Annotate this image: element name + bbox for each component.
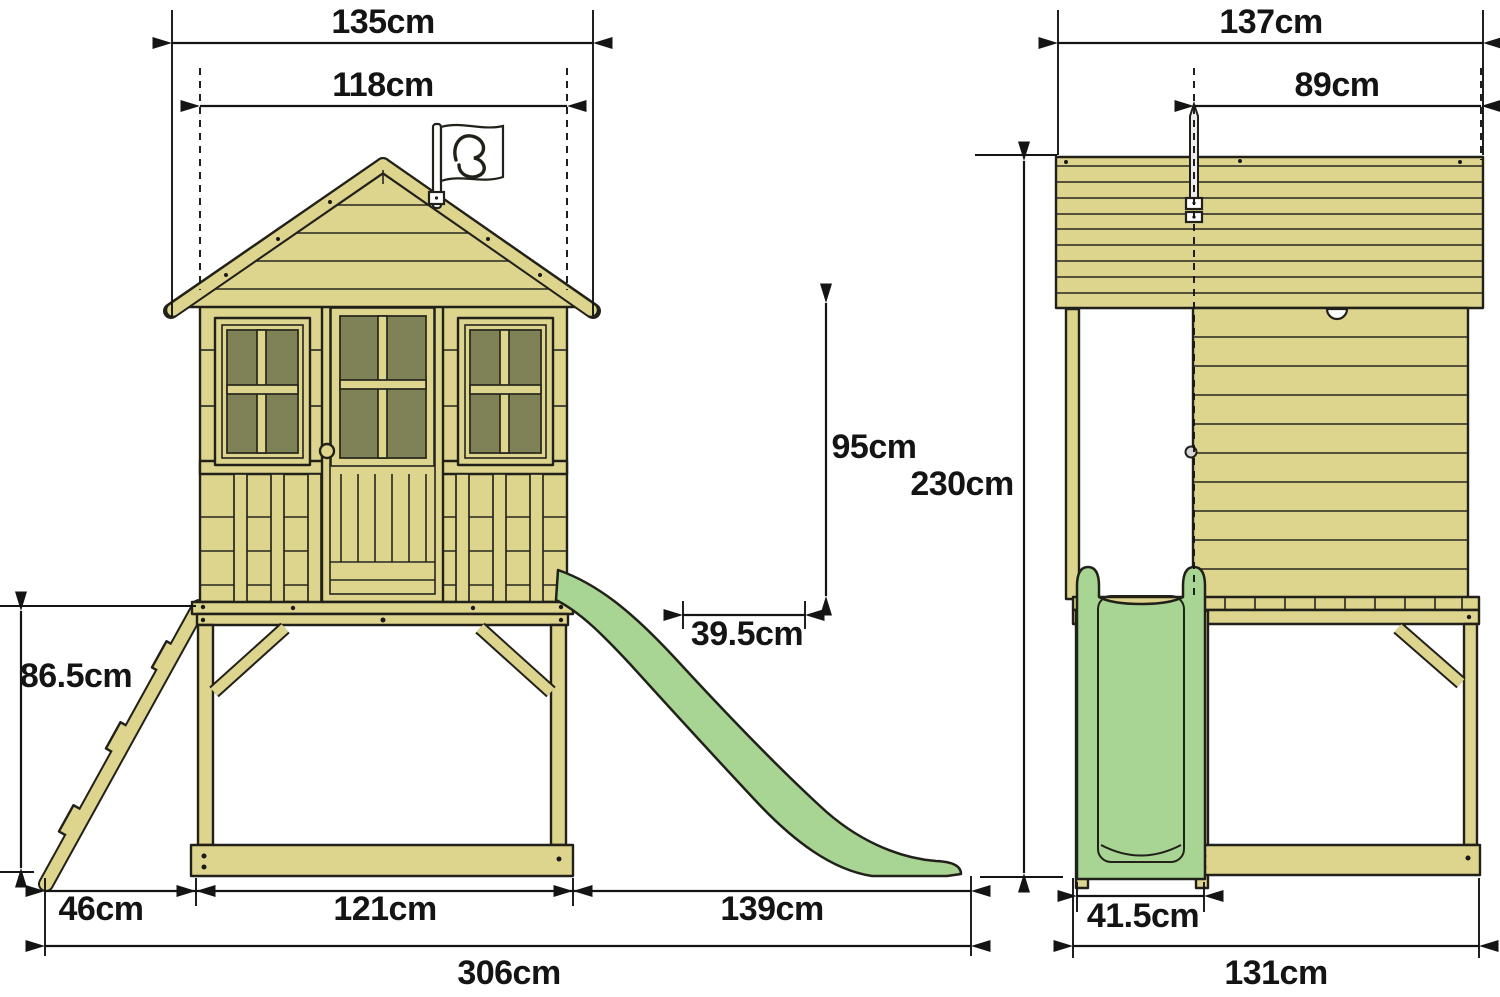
- dim-label: 306cm: [457, 954, 560, 992]
- dim-label: 135cm: [331, 3, 434, 41]
- dim-slide-footprint: 139cm: [573, 876, 971, 956]
- front-legs: [198, 625, 566, 845]
- side-wall: [1186, 308, 1469, 602]
- side-roof: [1056, 157, 1483, 308]
- dim-total-footprint: 306cm: [45, 946, 971, 992]
- playhouse-dimension-drawing: 135cm 118cm 137cm 89cm 95cm 39.5cm: [0, 0, 1500, 997]
- side-view: [1056, 104, 1483, 888]
- front-door: [316, 287, 449, 602]
- dim-side-total-depth: 137cm: [1058, 3, 1483, 155]
- dim-side-door-width: 39.5cm: [683, 601, 805, 653]
- dim-total-height: 230cm: [910, 155, 1063, 877]
- dim-label: 121cm: [333, 890, 436, 928]
- dim-label: 95cm: [832, 428, 917, 466]
- dim-label: 46cm: [59, 890, 144, 928]
- slide-front: [1077, 567, 1205, 879]
- dimension-drawing-canvas: 135cm 118cm 137cm 89cm 95cm 39.5cm: [0, 0, 1500, 997]
- front-window-right: [458, 318, 553, 465]
- dim-label: 131cm: [1224, 954, 1327, 992]
- dim-ladder-footprint: 46cm: [45, 878, 196, 956]
- dim-label: 139cm: [720, 890, 823, 928]
- door-knob: [320, 444, 334, 458]
- front-roof: [171, 165, 593, 311]
- front-view: [46, 124, 961, 884]
- front-base-beam: [191, 845, 573, 876]
- gable: [182, 172, 584, 307]
- dim-label: 230cm: [910, 465, 1013, 503]
- ladder: [46, 607, 199, 884]
- front-deck: [192, 602, 573, 625]
- porch-post: [1066, 309, 1079, 599]
- dim-label: 118cm: [332, 66, 434, 104]
- dim-label: 41.5cm: [1087, 897, 1199, 935]
- flag-cloth: [441, 125, 503, 181]
- dim-side-door-height: 95cm: [826, 303, 916, 596]
- dim-front-base-width: 121cm: [196, 878, 573, 928]
- side-base-beam: [1191, 845, 1480, 875]
- front-window-left: [215, 318, 310, 465]
- dim-label: 86.5cm: [20, 657, 132, 695]
- dim-label: 137cm: [1219, 3, 1322, 41]
- dim-slide-width: 41.5cm: [1077, 882, 1204, 935]
- dim-label: 89cm: [1295, 66, 1380, 104]
- side-wall-notch: [1327, 309, 1347, 319]
- dim-label: 39.5cm: [691, 615, 803, 653]
- flag-icon: [429, 124, 503, 208]
